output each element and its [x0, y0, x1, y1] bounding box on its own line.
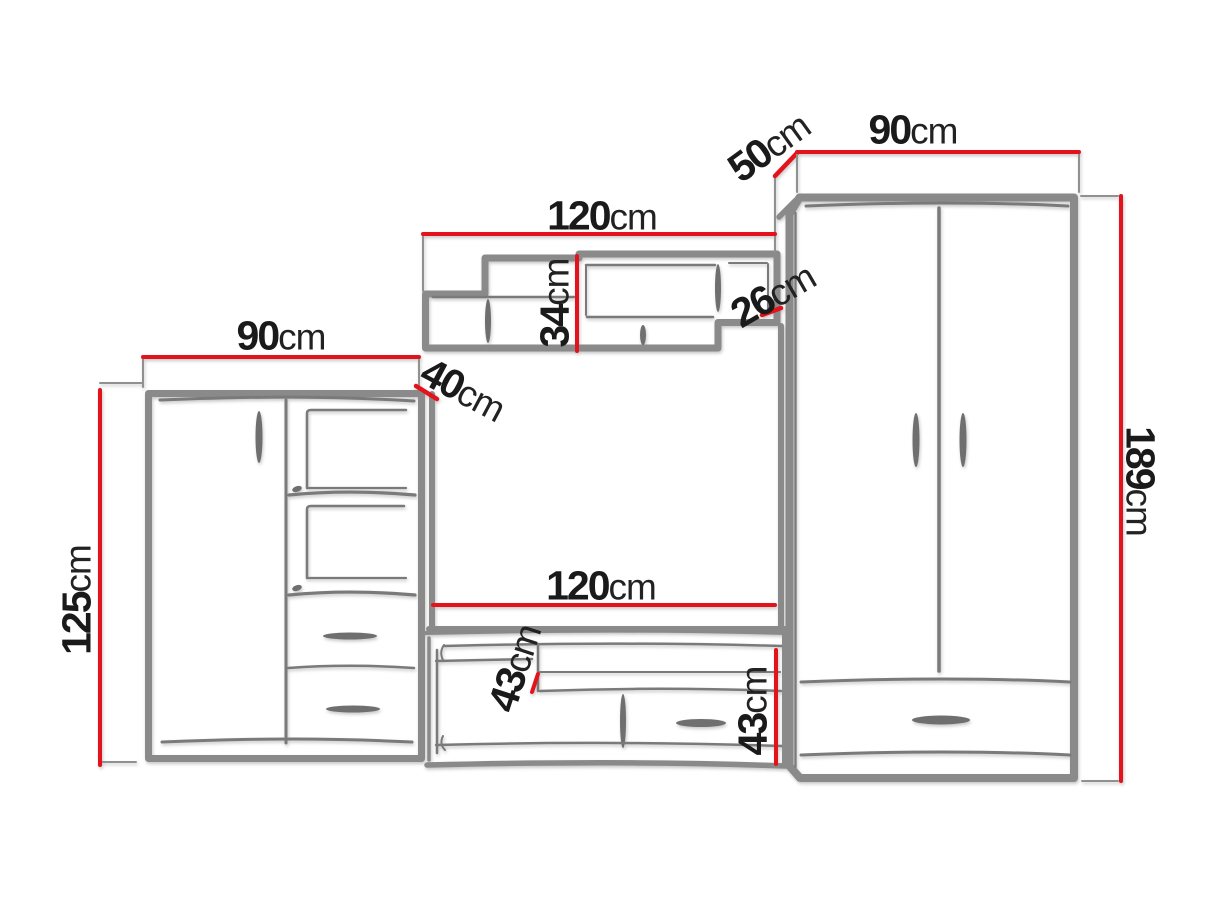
dimension-unit: cm: [1119, 489, 1160, 536]
wardrobe-drawer-handle: [912, 716, 970, 725]
dimension-unit: cm: [910, 111, 957, 152]
dimension-label-left-cabinet-width: 90cm: [237, 316, 326, 357]
wall-shelf-inner-divider: [715, 264, 721, 312]
furniture-dimension-diagram: 90cm 125cm 40cm 120cm 34cm 26cm 50cm 90c…: [0, 0, 1225, 919]
left-cabinet-shelf-niche-1: [307, 410, 406, 488]
tv-stand-inner-top: [444, 644, 782, 646]
tv-stand-divider: [620, 694, 626, 748]
dimension-unit: cm: [609, 567, 656, 608]
diagram-canvas: [0, 0, 1225, 919]
dimension-value: 90: [869, 107, 911, 153]
left-cabinet-door-handle: [256, 411, 263, 463]
dimension-label-wardrobe-height: 189cm: [1120, 426, 1161, 536]
wall-shelf-handle: [640, 325, 646, 345]
wardrobe: [779, 198, 1074, 779]
left-cabinet-shelf-line-1: [289, 492, 415, 495]
dimension-value: 43: [730, 714, 776, 756]
left-cabinet-drawer-handle-1: [323, 633, 377, 640]
dimension-unit: cm: [734, 667, 775, 714]
dimension-unit: cm: [610, 197, 657, 238]
left-cabinet-drawer-divider: [288, 666, 414, 668]
tv-stand-top: [426, 631, 786, 633]
tv-stand-bottom: [427, 763, 786, 766]
dimension-label-tv-stand-height: 43cm: [733, 667, 774, 756]
dimension-label-wall-shelf-width: 120cm: [547, 196, 657, 237]
wardrobe-drawer-top-line: [801, 679, 1070, 682]
dimension-value: 90: [237, 313, 279, 359]
wardrobe-door-handle-left: [913, 413, 920, 467]
dimension-value: 120: [546, 563, 608, 609]
dimension-lines: [100, 152, 1121, 781]
dimension-label-left-cabinet-height: 125cm: [57, 545, 98, 655]
dimension-value: 125: [54, 592, 100, 654]
left-cabinet-shelf-line-2: [289, 592, 415, 595]
tv-stand-drawer-handle: [676, 719, 726, 727]
sketch-dot: [291, 485, 302, 493]
dimension-value: 34: [532, 306, 578, 348]
sketch-corner-tick: [441, 645, 444, 660]
dimension-label-wardrobe-width: 90cm: [869, 110, 958, 151]
dimension-unit: cm: [536, 259, 577, 306]
sketch-corner-tick: [441, 736, 445, 750]
wardrobe-drawer-bottom-line: [801, 752, 1070, 755]
sketch-dot: [291, 584, 302, 592]
wall-shelf-divider: [485, 299, 491, 343]
dimension-value: 189: [1118, 426, 1164, 488]
dimension-label-tv-niche-width: 120cm: [546, 566, 656, 607]
dimension-label-wall-shelf-height: 34cm: [535, 259, 576, 348]
left-cabinet: [149, 394, 422, 759]
left-cabinet-shelf-niche-2: [307, 506, 404, 578]
dimension-unit: cm: [58, 545, 99, 592]
wardrobe-outline: [790, 198, 1075, 779]
wardrobe-inner-top: [806, 203, 1068, 206]
dimension-unit: cm: [278, 317, 325, 358]
wardrobe-door-handle-right: [960, 413, 967, 467]
dimension-value: 120: [547, 193, 609, 239]
left-cabinet-drawer-handle-2: [326, 706, 380, 713]
